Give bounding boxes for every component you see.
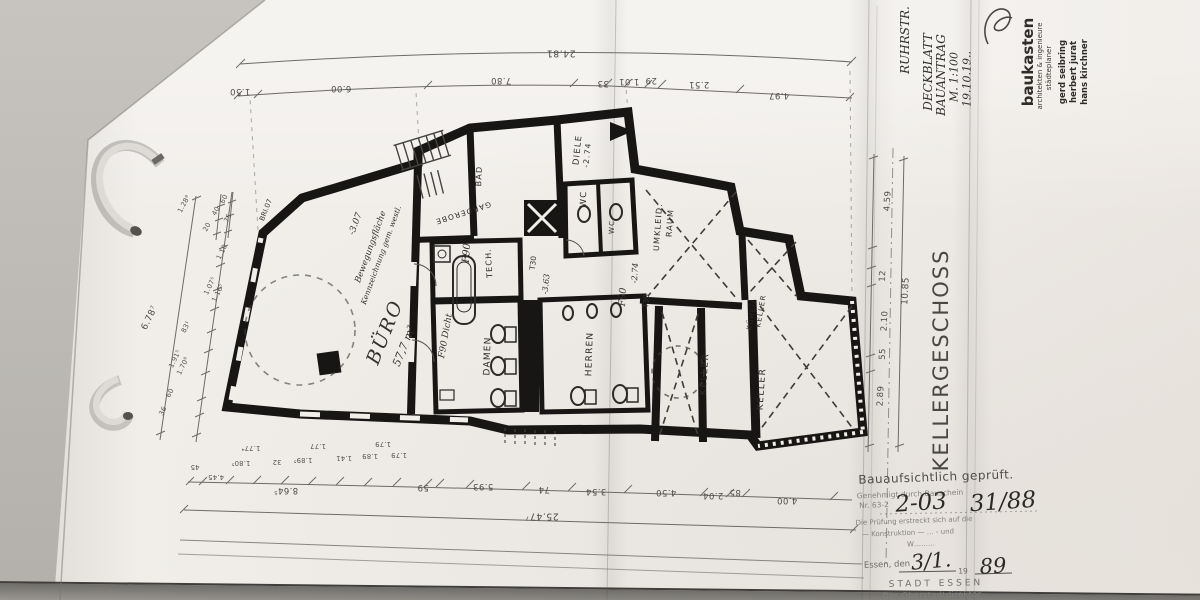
room-label-bad: BAD xyxy=(474,165,484,186)
dim-bottom-s8: 1.79 xyxy=(391,451,407,459)
dim-bottom-s6: 1.41 xyxy=(336,454,352,462)
room-label-wc2: WC xyxy=(608,220,616,234)
dim-bottom-m5: 3.54 xyxy=(586,486,607,496)
dim-right-overall: 10.85 xyxy=(900,277,911,305)
dim-bottom-s3: 1.80⁵ xyxy=(232,459,251,467)
stamp-hand-year: 89 xyxy=(979,553,1007,578)
dim-bottom-t3: 1.79 xyxy=(375,440,391,448)
dim-top-5: 1.01 xyxy=(619,76,640,86)
dim-top-4: 33 xyxy=(597,78,609,88)
binder-rings xyxy=(94,145,164,425)
firm-stamp-name: baukasten xyxy=(1019,18,1037,107)
dim-bottom-s4: 32 xyxy=(272,458,281,466)
signature xyxy=(985,9,1012,44)
dim-right-5: 4.59 xyxy=(882,190,893,211)
dim-bottom-s2: 4.45 xyxy=(208,473,224,481)
dim-right-1: 2.89 xyxy=(875,385,886,406)
dim-bottom-m4: 74 xyxy=(538,484,550,494)
stamp-city-date-label: Essen, den xyxy=(864,559,911,571)
stamp-faint-line: W……… xyxy=(907,540,935,549)
corner-note-street: RUHRSTR. xyxy=(898,6,912,74)
dim-bottom-m9: 4.00 xyxy=(777,495,798,505)
dim-top-7: 2.51 xyxy=(689,79,710,89)
dim-bottom-m1: 8.64⁵ xyxy=(274,485,298,495)
corner-note-scale: M. 1:100 xyxy=(948,52,961,102)
stamp-year-prefix: 19 xyxy=(958,566,968,575)
dim-bottom-overall: 25.47⁷ xyxy=(525,511,558,522)
dim-right-2: 55 xyxy=(878,348,889,360)
room-label-damen: DAMEN xyxy=(482,336,493,375)
elevator-shaft xyxy=(524,200,560,236)
dim-top-6: 29 xyxy=(645,75,657,85)
fire-label-f90-a: F90 xyxy=(461,243,473,263)
room-label-herren: HERREN xyxy=(584,332,596,377)
corner-note-sheet: DECKBLATT xyxy=(921,33,935,111)
stamp-hand-number: 2-03 xyxy=(894,488,947,518)
level-note-umkleide: -2.74 xyxy=(630,263,640,284)
photographed-blueprint: RUHRSTR. DECKBLATT BAUANTRAG M. 1:100 19… xyxy=(0,0,1200,600)
firm-stamp-partner2: herbert jurat xyxy=(1069,41,1079,103)
dim-right-4: 12 xyxy=(878,270,889,282)
dim-bottom-m8: 85 xyxy=(729,487,741,497)
dim-bottom-m2: 59 xyxy=(417,482,429,492)
dim-bottom-m3: 5.93 xyxy=(473,481,494,491)
fire-label-f90-c: F90 xyxy=(617,287,629,306)
corner-note-permit: BAUANTRAG xyxy=(934,34,948,116)
stamp-authority: STADT ESSEN xyxy=(889,578,984,590)
stamp-hand-date: 3/1. xyxy=(910,547,952,574)
stamp-authority-2: Der Oberstadtdirektor xyxy=(883,590,982,600)
dim-bottom-s7: 1.89 xyxy=(362,452,378,460)
dim-bottom-t2: 1.77 xyxy=(310,442,326,450)
dim-bottom-m7: 2.04 xyxy=(703,490,724,500)
firm-stamp-line3: städteplaner xyxy=(1045,46,1053,90)
firm-stamp-line2: architekten & ingenieure xyxy=(1036,22,1044,109)
door-label-t30-b: T30 xyxy=(641,294,651,309)
dim-right-3: 2.10 xyxy=(879,310,890,331)
corner-note-date: 19.10.19.. xyxy=(961,51,974,107)
dim-top-1: 1.50 xyxy=(230,86,251,96)
dim-bottom-s5: 1.89⁵ xyxy=(294,456,313,464)
dim-bottom-s1: 45 xyxy=(190,463,199,471)
firm-stamp-partner3: hans kirchner xyxy=(1080,39,1090,105)
room-label-wc1: WC xyxy=(579,190,590,207)
dim-bottom-m6: 4.50 xyxy=(656,487,677,497)
stamp-hand-number-2: 31/88 xyxy=(969,487,1037,518)
dim-top-2: 6.00 xyxy=(331,83,352,93)
page-title: KELLERGESCHOSS xyxy=(929,249,953,472)
dim-top-overall: 24.81 xyxy=(546,48,575,59)
firm-stamp-partner1: gerd seibring xyxy=(1058,40,1068,104)
door-label-t30-a: T30 xyxy=(528,256,538,271)
dim-bottom-t1: 1.77⁴ xyxy=(242,444,261,452)
dim-top-3: 7.80 xyxy=(491,75,512,85)
column xyxy=(317,351,342,376)
dim-top-8: 4.97 xyxy=(769,90,790,100)
stamp-number-label: Nr. 63-2 xyxy=(859,500,889,510)
